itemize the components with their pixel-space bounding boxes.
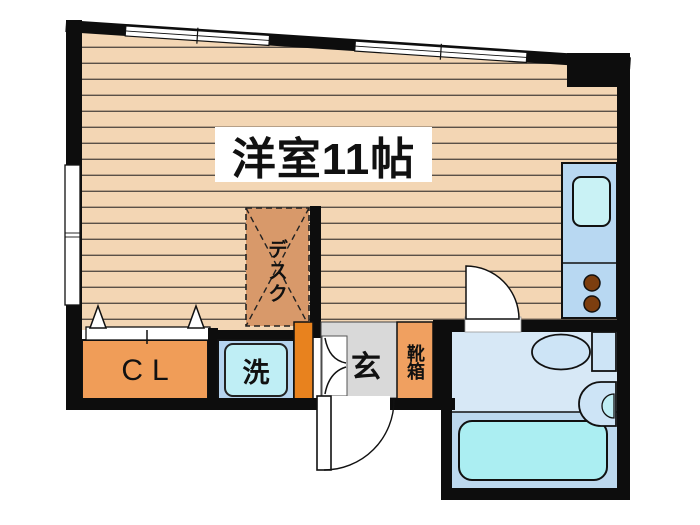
floor-plan: 洋室11帖 デスク CL 洗 玄 靴箱 — [0, 0, 700, 525]
closet-door-track — [86, 327, 210, 340]
desk-label: デスク — [261, 220, 291, 324]
room-size-label: 洋室11帖 — [215, 127, 432, 182]
laundry-side-cabinet — [294, 322, 313, 400]
toilet-tank — [592, 332, 616, 371]
right-wall — [617, 53, 630, 500]
closet-laundry-wall — [208, 328, 218, 402]
front-door-leaf — [317, 396, 331, 470]
bottom-wall-right — [390, 398, 455, 410]
window — [65, 165, 80, 305]
front-door — [317, 396, 394, 470]
kitchen-sink — [573, 177, 610, 226]
shoebox-label: 靴箱 — [402, 327, 428, 397]
closet-label: CL — [82, 341, 208, 401]
entrance-label: 玄 — [336, 336, 396, 392]
desk-side-wall — [310, 206, 321, 338]
kitchen-unit — [562, 163, 617, 318]
bathtub — [459, 421, 607, 480]
bathroom-left-wall-lower — [441, 400, 453, 500]
laundry-label: 洗 — [225, 345, 287, 395]
bathroom-left-wall-upper — [433, 320, 453, 410]
stove-burner — [584, 296, 600, 312]
corner-notch-wall — [567, 53, 618, 87]
floor-plan-drawing — [0, 0, 700, 525]
bathroom-bottom-wall — [441, 488, 630, 500]
toilet-bowl — [532, 335, 590, 370]
stove-burner — [584, 275, 600, 291]
